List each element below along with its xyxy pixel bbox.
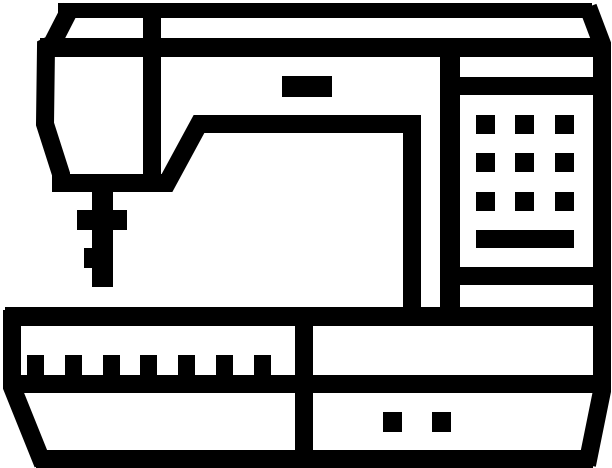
feed-tooth: [254, 355, 271, 376]
feed-tooth: [178, 355, 195, 376]
feed-tooth: [103, 355, 120, 376]
thread-guide-tab: [84, 248, 94, 268]
sewing-machine-icon: Sewing machine pictogram: [0, 0, 612, 468]
panel-button-grid: [476, 115, 574, 211]
drawer-dot: [432, 412, 451, 432]
feed-tooth: [216, 355, 233, 376]
needle-bar: [92, 190, 113, 287]
panel-button: [476, 192, 495, 211]
panel-button: [515, 115, 534, 134]
presser-foot-crossbar: [77, 210, 127, 230]
sewing-machine-svg: Sewing machine pictogram: [0, 0, 612, 468]
feed-tooth: [27, 355, 44, 376]
panel-button: [515, 153, 534, 172]
panel-button: [515, 192, 534, 211]
feed-tooth: [65, 355, 82, 376]
panel-button: [555, 192, 574, 211]
panel-button: [555, 153, 574, 172]
panel-button: [476, 153, 495, 172]
drawer-dot: [383, 412, 402, 432]
feed-tooth: [140, 355, 157, 376]
panel-display-bar: [476, 230, 574, 248]
panel-button: [555, 115, 574, 134]
thread-slot: [282, 76, 332, 97]
panel-button: [476, 115, 495, 134]
